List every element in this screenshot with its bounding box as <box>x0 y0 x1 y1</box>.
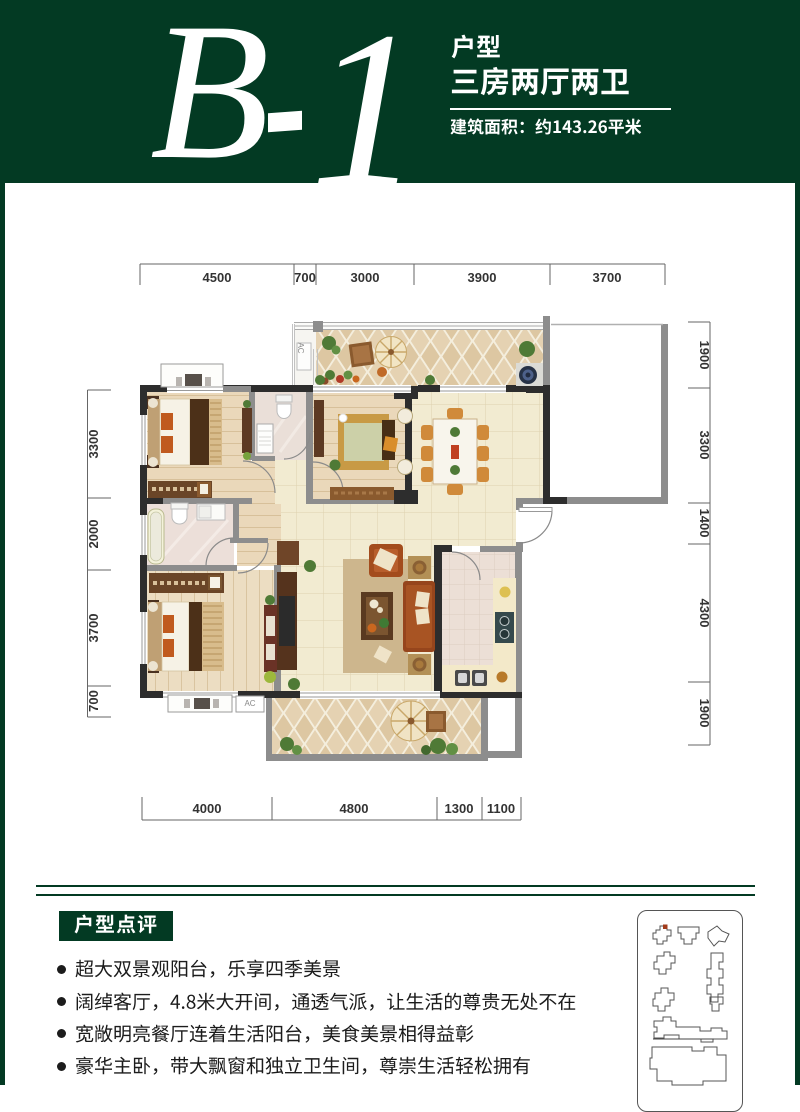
svg-text:2000: 2000 <box>86 520 101 549</box>
svg-text:4300: 4300 <box>697 599 712 628</box>
svg-text:3700: 3700 <box>86 614 101 643</box>
svg-text:4500: 4500 <box>203 270 232 285</box>
svg-text:3300: 3300 <box>697 431 712 460</box>
svg-text:1300: 1300 <box>445 801 474 816</box>
svg-text:1100: 1100 <box>487 801 515 816</box>
svg-text:700: 700 <box>294 270 316 285</box>
svg-text:1400: 1400 <box>697 509 712 538</box>
svg-text:4000: 4000 <box>193 801 222 816</box>
svg-text:3700: 3700 <box>593 270 622 285</box>
svg-text:3000: 3000 <box>351 270 380 285</box>
svg-text:1900: 1900 <box>697 341 712 370</box>
svg-text:4800: 4800 <box>340 801 369 816</box>
svg-text:AC: AC <box>296 342 305 353</box>
svg-text:3900: 3900 <box>468 270 497 285</box>
svg-text:700: 700 <box>86 690 101 712</box>
svg-text:AC: AC <box>244 699 255 708</box>
svg-text:1900: 1900 <box>697 699 712 728</box>
svg-text:3300: 3300 <box>86 430 101 459</box>
